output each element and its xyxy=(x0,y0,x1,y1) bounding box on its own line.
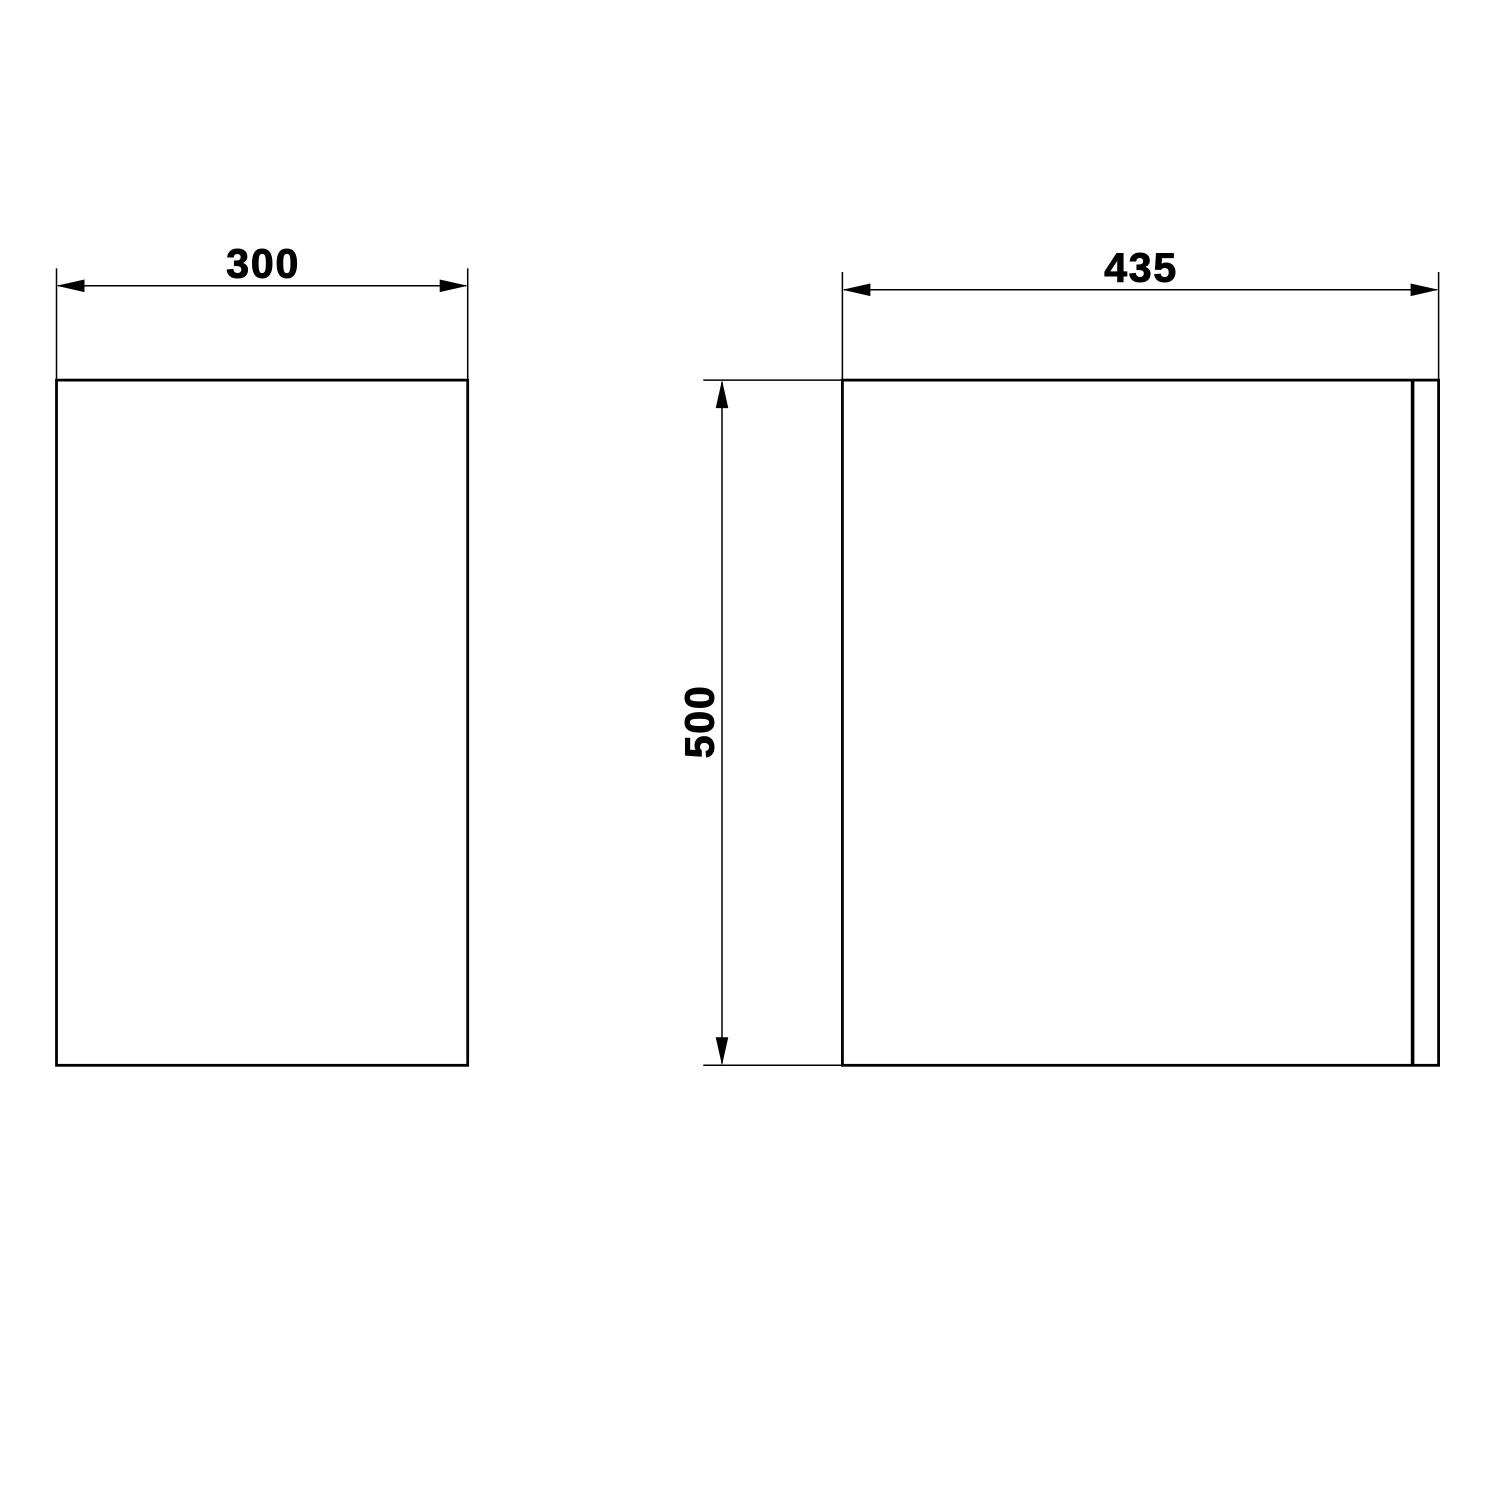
svg-text:300: 300 xyxy=(226,241,298,287)
svg-text:435: 435 xyxy=(1104,244,1176,290)
svg-text:500: 500 xyxy=(677,686,723,758)
